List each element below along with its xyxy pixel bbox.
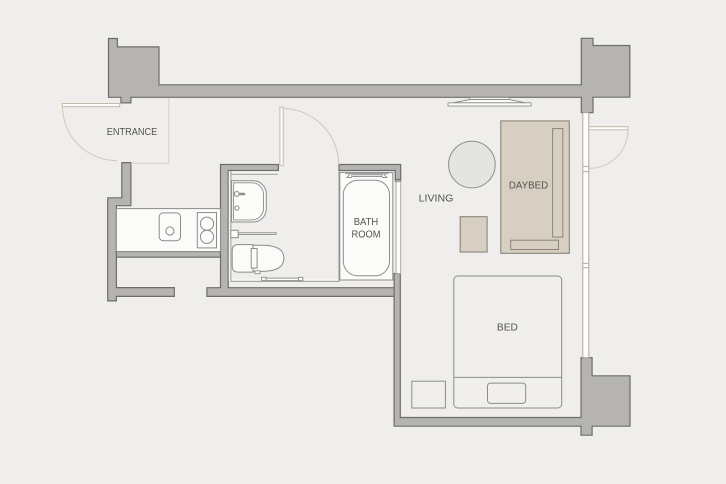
svg-text:ENTRANCE: ENTRANCE (107, 127, 158, 138)
svg-text:BED: BED (497, 323, 518, 334)
svg-text:BATH: BATH (354, 217, 379, 228)
svg-text:DAYBED: DAYBED (509, 181, 548, 192)
svg-text:LIVING: LIVING (419, 193, 454, 204)
svg-text:ROOM: ROOM (352, 230, 381, 241)
